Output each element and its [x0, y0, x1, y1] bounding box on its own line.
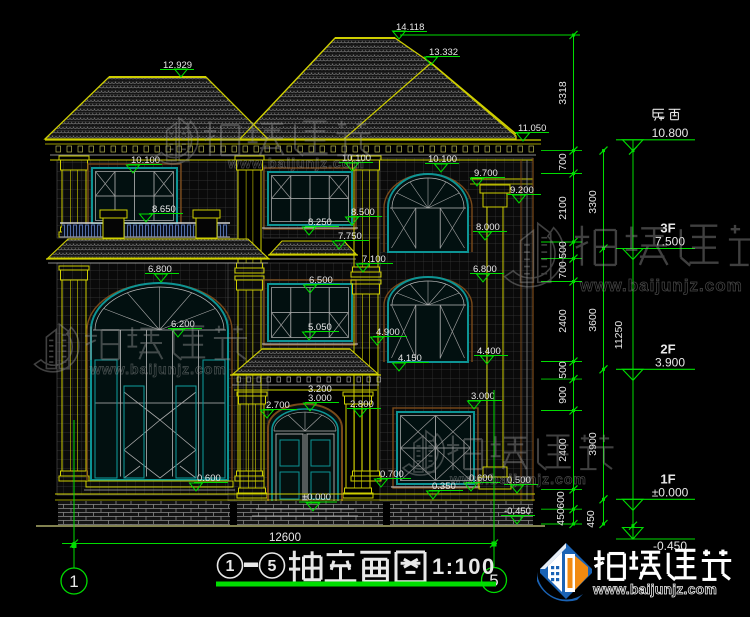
svg-text:±0.000: ±0.000 — [652, 485, 689, 499]
svg-text:2400: 2400 — [557, 309, 569, 333]
svg-text:2400: 2400 — [557, 438, 569, 462]
svg-text:1:100: 1:100 — [432, 554, 496, 579]
svg-text:500: 500 — [557, 361, 569, 379]
svg-text:1: 1 — [69, 572, 78, 591]
svg-text:1: 1 — [226, 558, 235, 575]
svg-text:450: 450 — [555, 508, 567, 526]
svg-text:3318: 3318 — [557, 81, 569, 105]
svg-text:www.baijunjz.com: www.baijunjz.com — [89, 361, 227, 377]
svg-text:3.900: 3.900 — [655, 355, 685, 369]
svg-text:±0.000: ±0.000 — [302, 492, 331, 503]
svg-text:2100: 2100 — [557, 196, 569, 220]
svg-text:450: 450 — [585, 510, 597, 528]
svg-text:1F: 1F — [660, 471, 675, 486]
svg-text:10.800: 10.800 — [652, 126, 689, 140]
svg-text:2F: 2F — [660, 341, 675, 356]
svg-text:600: 600 — [555, 491, 567, 509]
svg-text:12600: 12600 — [269, 532, 301, 544]
svg-text:www.baijunjz.com: www.baijunjz.com — [227, 155, 365, 171]
svg-text:3.200: 3.200 — [308, 384, 332, 395]
svg-text:www.baijunjz.com: www.baijunjz.com — [579, 276, 743, 295]
svg-text:www.baijunjz.com: www.baijunjz.com — [592, 581, 717, 597]
svg-text:3600: 3600 — [587, 308, 599, 332]
svg-text:700: 700 — [557, 153, 569, 171]
svg-text:3300: 3300 — [587, 190, 599, 214]
svg-text:900: 900 — [557, 386, 569, 404]
svg-text:11250: 11250 — [613, 321, 625, 350]
svg-text:www.baijunjz.com: www.baijunjz.com — [449, 471, 587, 487]
svg-text:5: 5 — [268, 558, 277, 575]
